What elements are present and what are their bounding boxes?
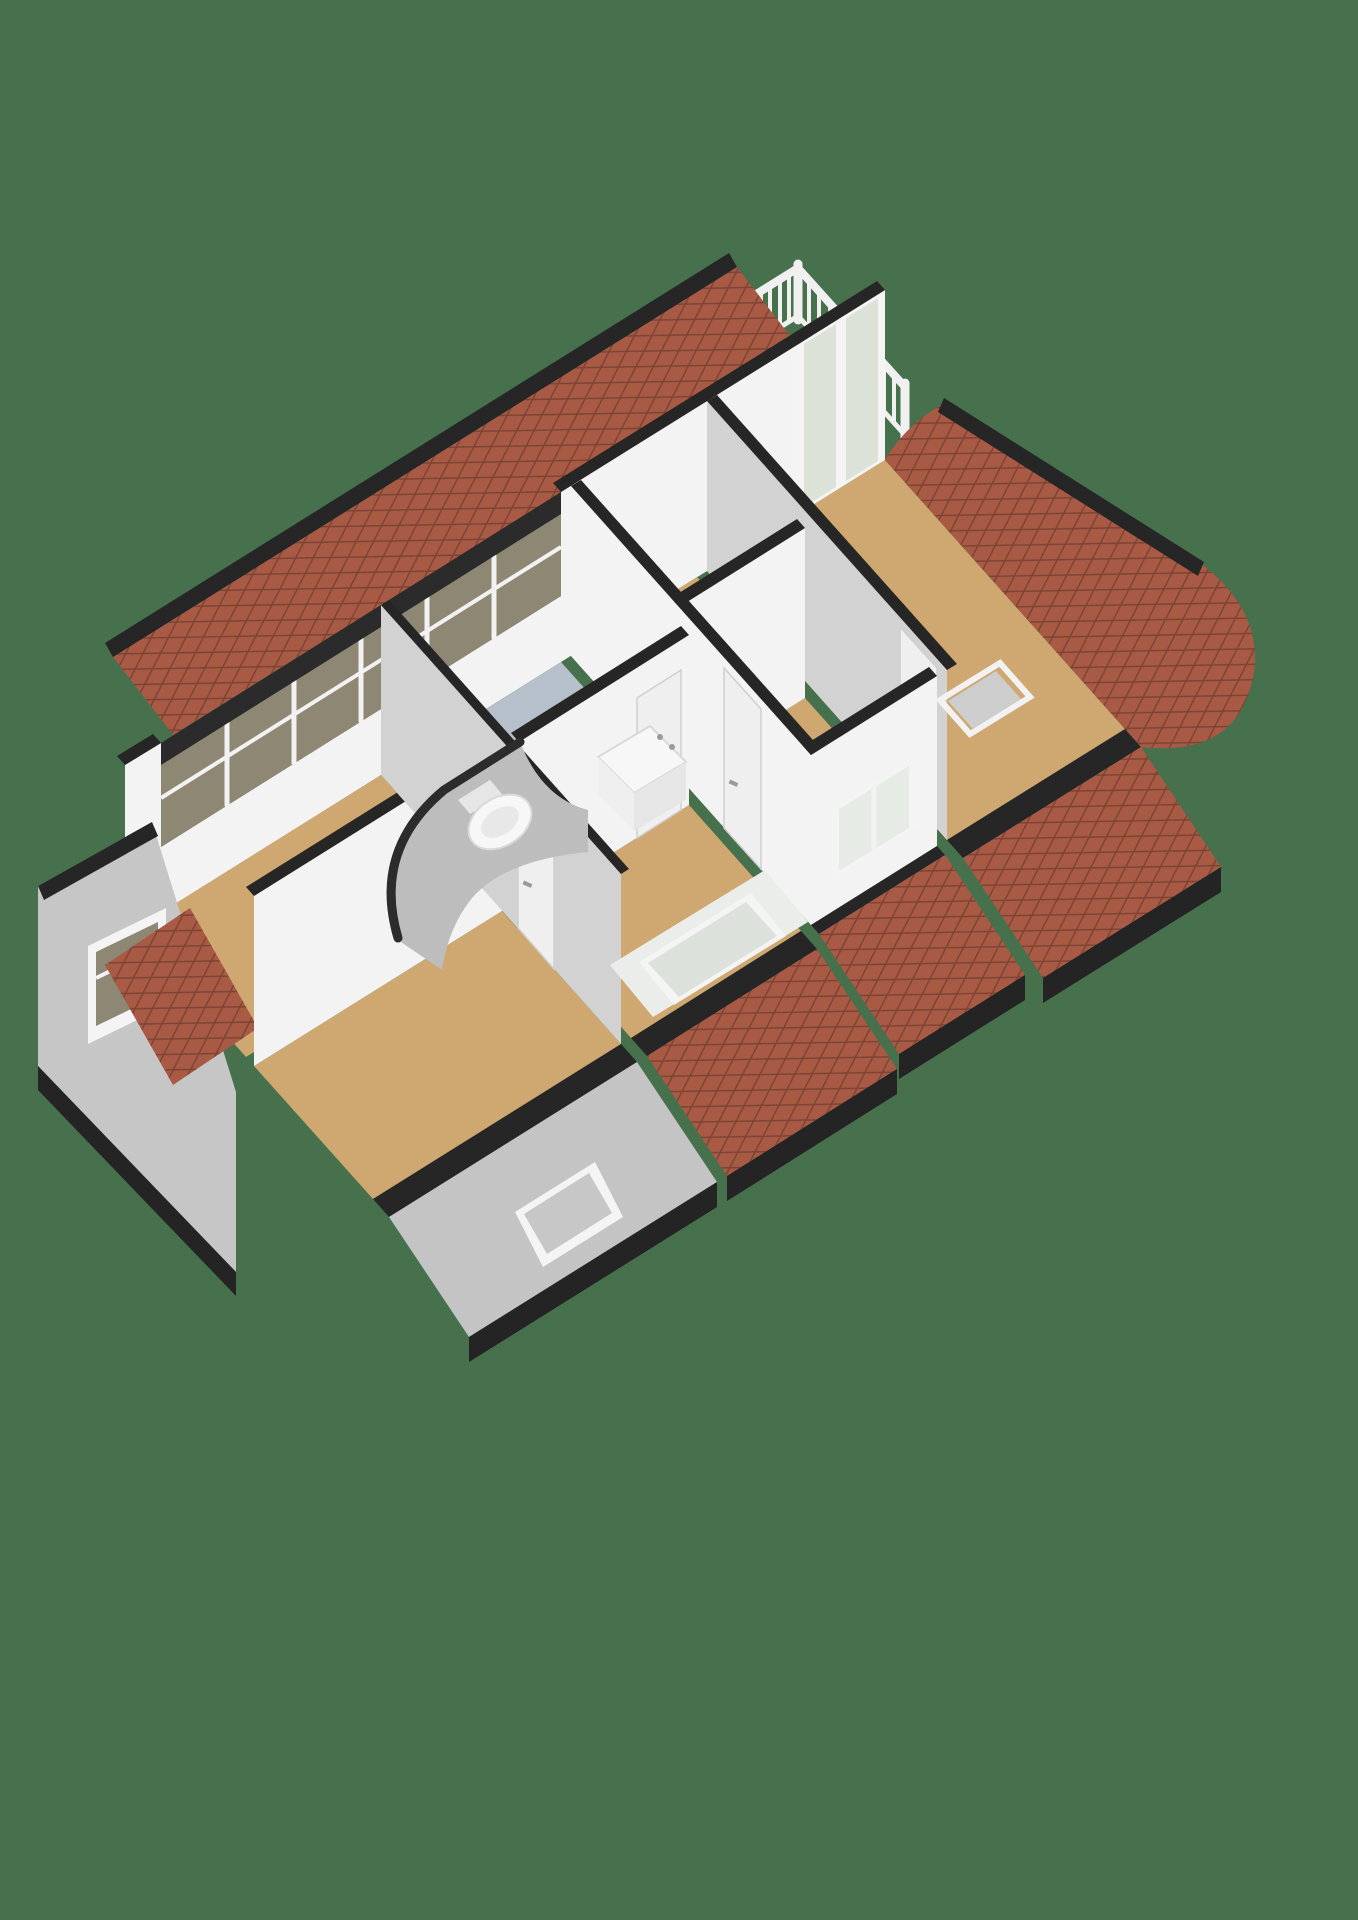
tap [657,734,663,740]
glass-door-pane-left [804,324,836,507]
tap [669,744,675,750]
glass-door-pane-right [846,298,878,481]
floor-plan-image [0,0,1358,1920]
floor-plan-render [0,0,1358,1920]
